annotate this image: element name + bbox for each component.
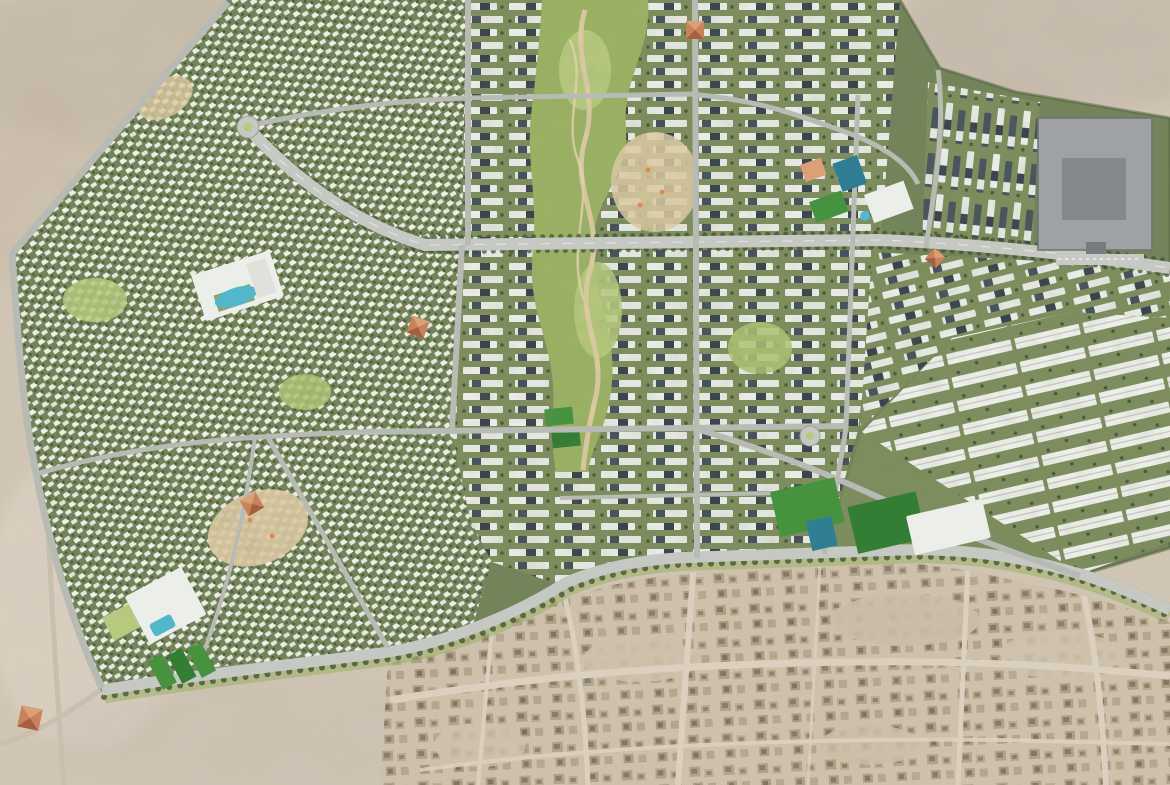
road-vertical-b bbox=[695, 0, 697, 558]
roundabout-east-island bbox=[806, 432, 814, 440]
mosque bbox=[17, 705, 43, 731]
aerial-masterplan-screenshot bbox=[0, 0, 1170, 785]
masterplan-aerial-map bbox=[0, 0, 1170, 785]
roundabout-northwest-island bbox=[244, 123, 253, 132]
community-mall bbox=[1038, 118, 1152, 265]
mall-entrance-block bbox=[1086, 242, 1106, 256]
mall-roof-inset bbox=[1062, 158, 1126, 220]
mosque bbox=[686, 21, 704, 39]
